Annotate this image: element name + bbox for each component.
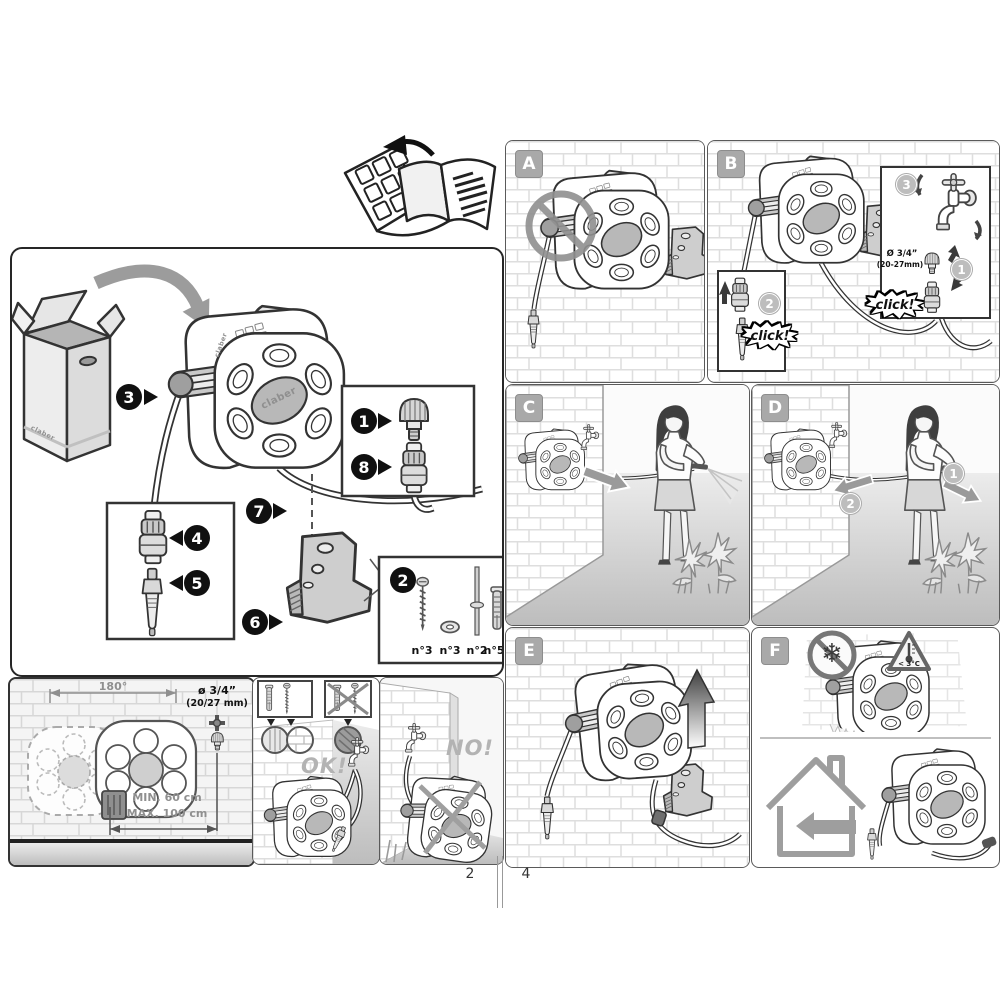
no-panel: NO!: [379, 677, 504, 865]
callout-4-pointer: [169, 530, 183, 546]
tap-diameter-label: Ø 3/4”: [879, 249, 925, 259]
plug-count-label: n°5: [476, 644, 504, 657]
callout-1: 1: [351, 408, 377, 434]
step-e-illustration: [506, 628, 749, 867]
step-letter-d: D: [761, 394, 789, 422]
wall-bracket-drawing: [287, 533, 371, 622]
step-panel-b: B 2 3 1 click! click! Ø 3/4” (20-27mm): [707, 140, 1000, 383]
step-f-illustration: [752, 628, 999, 867]
bring-inside-arrow-icon: [796, 812, 856, 840]
callout-6-pointer: [269, 614, 283, 630]
step-letter-f: F: [761, 637, 789, 665]
coupling-icon: [732, 278, 749, 311]
coupling-icon: [924, 282, 939, 312]
step-d-illustration: [752, 385, 999, 625]
wall-plug-icon: [491, 587, 502, 629]
max-distance-label: MAX. 100 cm: [122, 807, 212, 820]
hose-reel-drawing: [169, 306, 344, 468]
step-d-number-1: 1: [943, 463, 964, 484]
step-d-number-2: 2: [840, 493, 861, 514]
page-number-left: 2: [455, 866, 485, 882]
callout-5: 5: [184, 570, 210, 596]
callout-3-pointer: [144, 389, 158, 405]
callout-8-pointer: [378, 459, 392, 475]
nozzle-icon: [868, 829, 877, 859]
unpacking-panel: 3 1 8 4 5 7 6 2 n°3 n°3 n°2 n°5 claber c…: [10, 247, 504, 677]
snowflake-icon: ❄: [817, 641, 847, 667]
hose-reel-drawing: [882, 749, 985, 844]
click-bubble-tap: click!: [866, 291, 924, 319]
step-panel-d: D 1 2: [751, 384, 1000, 626]
rotation-label: 180°: [88, 680, 138, 693]
callout-3: 3: [116, 384, 142, 410]
ok-label: OK!: [301, 754, 348, 778]
callout-4: 4: [184, 525, 210, 551]
step-panel-f: F ❄ < 3°C: [751, 627, 1000, 868]
floor-line: [10, 839, 253, 843]
callout-7-pointer: [273, 503, 287, 519]
step-b-number-1: 1: [951, 259, 972, 280]
box-illustration: [12, 291, 124, 461]
tap-diameter-label: ø 3/4”: [186, 684, 248, 697]
callout-7: 7: [246, 498, 272, 524]
callout-8: 8: [351, 454, 377, 480]
step-b-number-2: 2: [759, 293, 780, 314]
hose-reel-drawing: [519, 429, 585, 490]
callout-6: 6: [242, 609, 268, 635]
callout-1-pointer: [378, 413, 392, 429]
page-fold-divider: [497, 856, 503, 908]
washer-icon: [441, 622, 459, 633]
step-b-number-3: 3: [896, 174, 917, 195]
step-panel-e: E: [505, 627, 750, 868]
click-bubble-hose: click!: [742, 322, 798, 350]
suitable-materials-inset: [258, 681, 313, 753]
ok-panel: OK!: [252, 677, 380, 865]
house-icon: [768, 758, 864, 854]
hose-end-inset-box: [107, 503, 234, 639]
reel-front-drawing: [96, 721, 196, 819]
step-panel-a: A: [505, 140, 705, 383]
hose-reel-drawing: [748, 156, 863, 263]
hose-end-coupling: [981, 836, 997, 849]
step-letter-c: C: [515, 394, 543, 422]
temperature-label: < 3°C: [891, 660, 927, 668]
page-number-right: 4: [511, 866, 541, 882]
no-illustration: [380, 678, 503, 864]
hose-connect-inset: [718, 271, 785, 371]
min-distance-label: MIN. 60 cm: [122, 791, 212, 804]
no-label: NO!: [446, 736, 494, 760]
mounting-clearance-panel: 180° ø 3/4” (20/27 mm) MIN. 60 cm MAX. 1…: [8, 677, 255, 867]
tap-diameter-mm-label: (20-27mm): [874, 260, 926, 269]
step-letter-a: A: [515, 150, 543, 178]
step-c-illustration: [506, 385, 749, 625]
tap-diameter-mm-label: (20/27 mm): [182, 698, 252, 709]
booklet-icon: [335, 135, 500, 247]
callout-5-pointer: [169, 575, 183, 591]
hose-reel-drawing: [765, 429, 831, 490]
callout-2: 2: [390, 567, 416, 593]
manual-page: 3 1 8 4 5 7 6 2 n°3 n°3 n°2 n°5 claber c…: [0, 0, 1000, 1000]
step-panel-c: C: [505, 384, 750, 626]
step-letter-e: E: [515, 637, 543, 665]
floor: [10, 843, 253, 865]
step-letter-b: B: [717, 150, 745, 178]
